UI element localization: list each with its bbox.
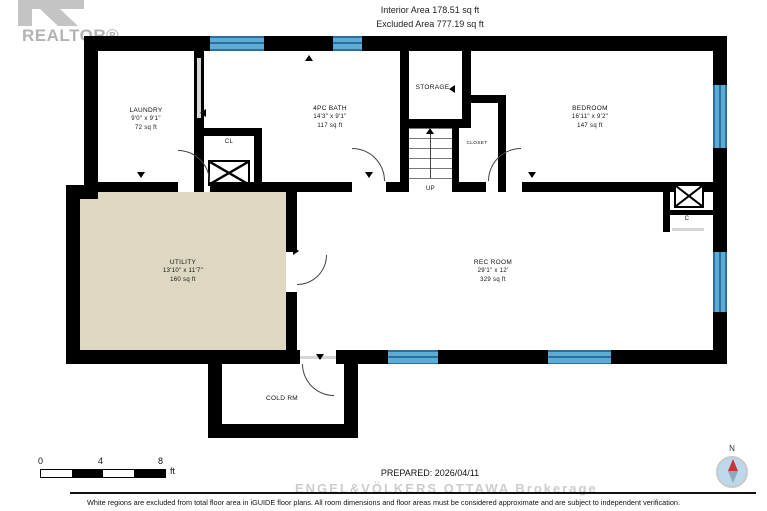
scale-bar-segment xyxy=(134,470,165,477)
realtor-block-r-icon xyxy=(14,0,86,26)
interior-area-text: Interior Area 178.51 sq ft xyxy=(340,4,520,18)
door-swing-arc xyxy=(488,148,521,181)
wall xyxy=(452,182,486,192)
door-opening xyxy=(672,228,704,231)
room-label-utility: UTILITY 13'10" x 11'7" 160 sq ft xyxy=(120,258,246,285)
door-direction-arrow xyxy=(365,172,373,178)
scale-unit: ft xyxy=(170,466,175,476)
door-direction-arrow xyxy=(528,172,536,178)
door-swing-arc xyxy=(297,255,327,285)
window-marker xyxy=(713,252,727,312)
wall xyxy=(663,210,713,215)
room-label-bedroom: BEDROOM 16'11" x 9'2" 147 sq ft xyxy=(515,104,665,131)
scale-bar-segment xyxy=(72,470,103,477)
door-direction-arrow xyxy=(137,172,145,178)
room-label-closet: CLOSET xyxy=(455,141,499,146)
wall xyxy=(386,182,409,192)
room-label-bath: 4PC BATH 14'3" x 9'1" 117 sq ft xyxy=(255,104,405,131)
wall xyxy=(84,36,98,192)
floorplan-canvas: REALTOR® Interior Area 178.51 sq ft Excl… xyxy=(0,0,767,511)
compass-needle-north xyxy=(728,459,738,471)
wall xyxy=(462,51,471,128)
room-label-storage: STORAGE xyxy=(405,83,460,92)
window-marker xyxy=(548,350,611,364)
window-marker xyxy=(210,36,264,51)
wall xyxy=(210,182,352,192)
room-label-cold-room: COLD RM xyxy=(232,394,332,403)
door-direction-arrow xyxy=(305,55,313,61)
door-direction-arrow xyxy=(200,109,206,117)
wall xyxy=(400,119,462,128)
room-label-cl: CL xyxy=(206,139,252,145)
window-marker xyxy=(388,350,438,364)
door-direction-arrow xyxy=(88,147,94,155)
scale-tick-0: 0 xyxy=(38,456,43,466)
room-label-rec-room: REC ROOM 29'1" x 12' 329 sq ft xyxy=(418,258,568,285)
wall xyxy=(286,292,297,350)
prepared-date: PREPARED: 2026/04/11 xyxy=(330,468,530,478)
scale-tick-8: 8 xyxy=(158,456,163,466)
stairs-direction-line xyxy=(430,134,431,178)
window-marker xyxy=(333,36,362,51)
area-summary: Interior Area 178.51 sq ft Excluded Area… xyxy=(340,4,520,31)
excluded-area-text: Excluded Area 777.19 sq ft xyxy=(340,18,520,32)
scale-bar-segment xyxy=(103,470,134,477)
door-swing-arc xyxy=(302,364,334,396)
wall xyxy=(663,182,670,232)
scale-tick-4: 4 xyxy=(98,456,103,466)
footer-separator-line xyxy=(70,492,756,494)
wall xyxy=(66,185,80,364)
scale-bar xyxy=(40,469,166,478)
stairs-up-label: UP xyxy=(409,186,452,192)
stairs-up-arrow-icon xyxy=(426,128,434,134)
wall xyxy=(286,192,297,252)
door-swing-arc xyxy=(178,150,210,182)
wall xyxy=(98,182,178,192)
door-direction-arrow xyxy=(293,247,299,255)
window-marker xyxy=(713,85,727,148)
scale-bar-segment xyxy=(41,470,72,477)
wall xyxy=(66,350,300,364)
door-direction-arrow xyxy=(316,354,324,360)
room-label-laundry: LAUNDRY 9'0" x 9'1" 72 sq ft xyxy=(98,106,194,133)
compass-north-label: N xyxy=(716,444,748,453)
compass-needle-south xyxy=(728,471,738,483)
utility-shaft-box xyxy=(674,184,704,208)
disclaimer-text: White regions are excluded from total fl… xyxy=(0,498,767,507)
room-label-c: C xyxy=(663,216,711,222)
wall xyxy=(208,424,358,438)
wall xyxy=(84,36,727,51)
